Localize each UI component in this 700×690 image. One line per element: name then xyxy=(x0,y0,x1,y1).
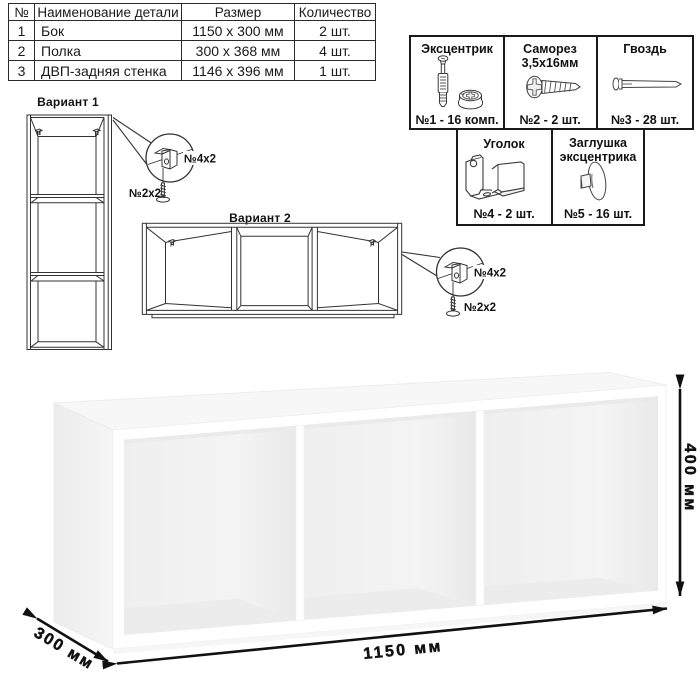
svg-text:Заглушка: Заглушка xyxy=(569,136,628,150)
svg-text:3,5х16мм: 3,5х16мм xyxy=(522,56,579,70)
svg-text:эксцентрика: эксцентрика xyxy=(560,150,638,164)
svg-text:№4х2: №4х2 xyxy=(184,154,216,166)
svg-text:Эксцентрик: Эксцентрик xyxy=(421,42,494,56)
svg-text:№2х2: №2х2 xyxy=(464,302,496,314)
svg-text:№2х2: №2х2 xyxy=(129,188,161,200)
svg-text:№2 - 2 шт.: №2 - 2 шт. xyxy=(519,113,580,127)
svg-text:№5 - 16 шт.: №5 - 16 шт. xyxy=(564,207,632,221)
svg-text:400 мм: 400 мм xyxy=(681,443,698,512)
svg-text:Гвоздь: Гвоздь xyxy=(623,42,667,56)
svg-text:№4 - 2 шт.: №4 - 2 шт. xyxy=(473,207,534,221)
svg-text:Вариант 1: Вариант 1 xyxy=(37,95,99,109)
svg-text:Уголок: Уголок xyxy=(483,137,525,151)
svg-text:№3 - 28 шт.: №3 - 28 шт. xyxy=(611,113,679,127)
svg-text:Саморез: Саморез xyxy=(523,42,577,56)
svg-text:№4х2: №4х2 xyxy=(474,268,506,280)
svg-text:1150 мм: 1150 мм xyxy=(363,638,444,663)
svg-text:№1 - 16 комп.: №1 - 16 комп. xyxy=(415,113,498,127)
